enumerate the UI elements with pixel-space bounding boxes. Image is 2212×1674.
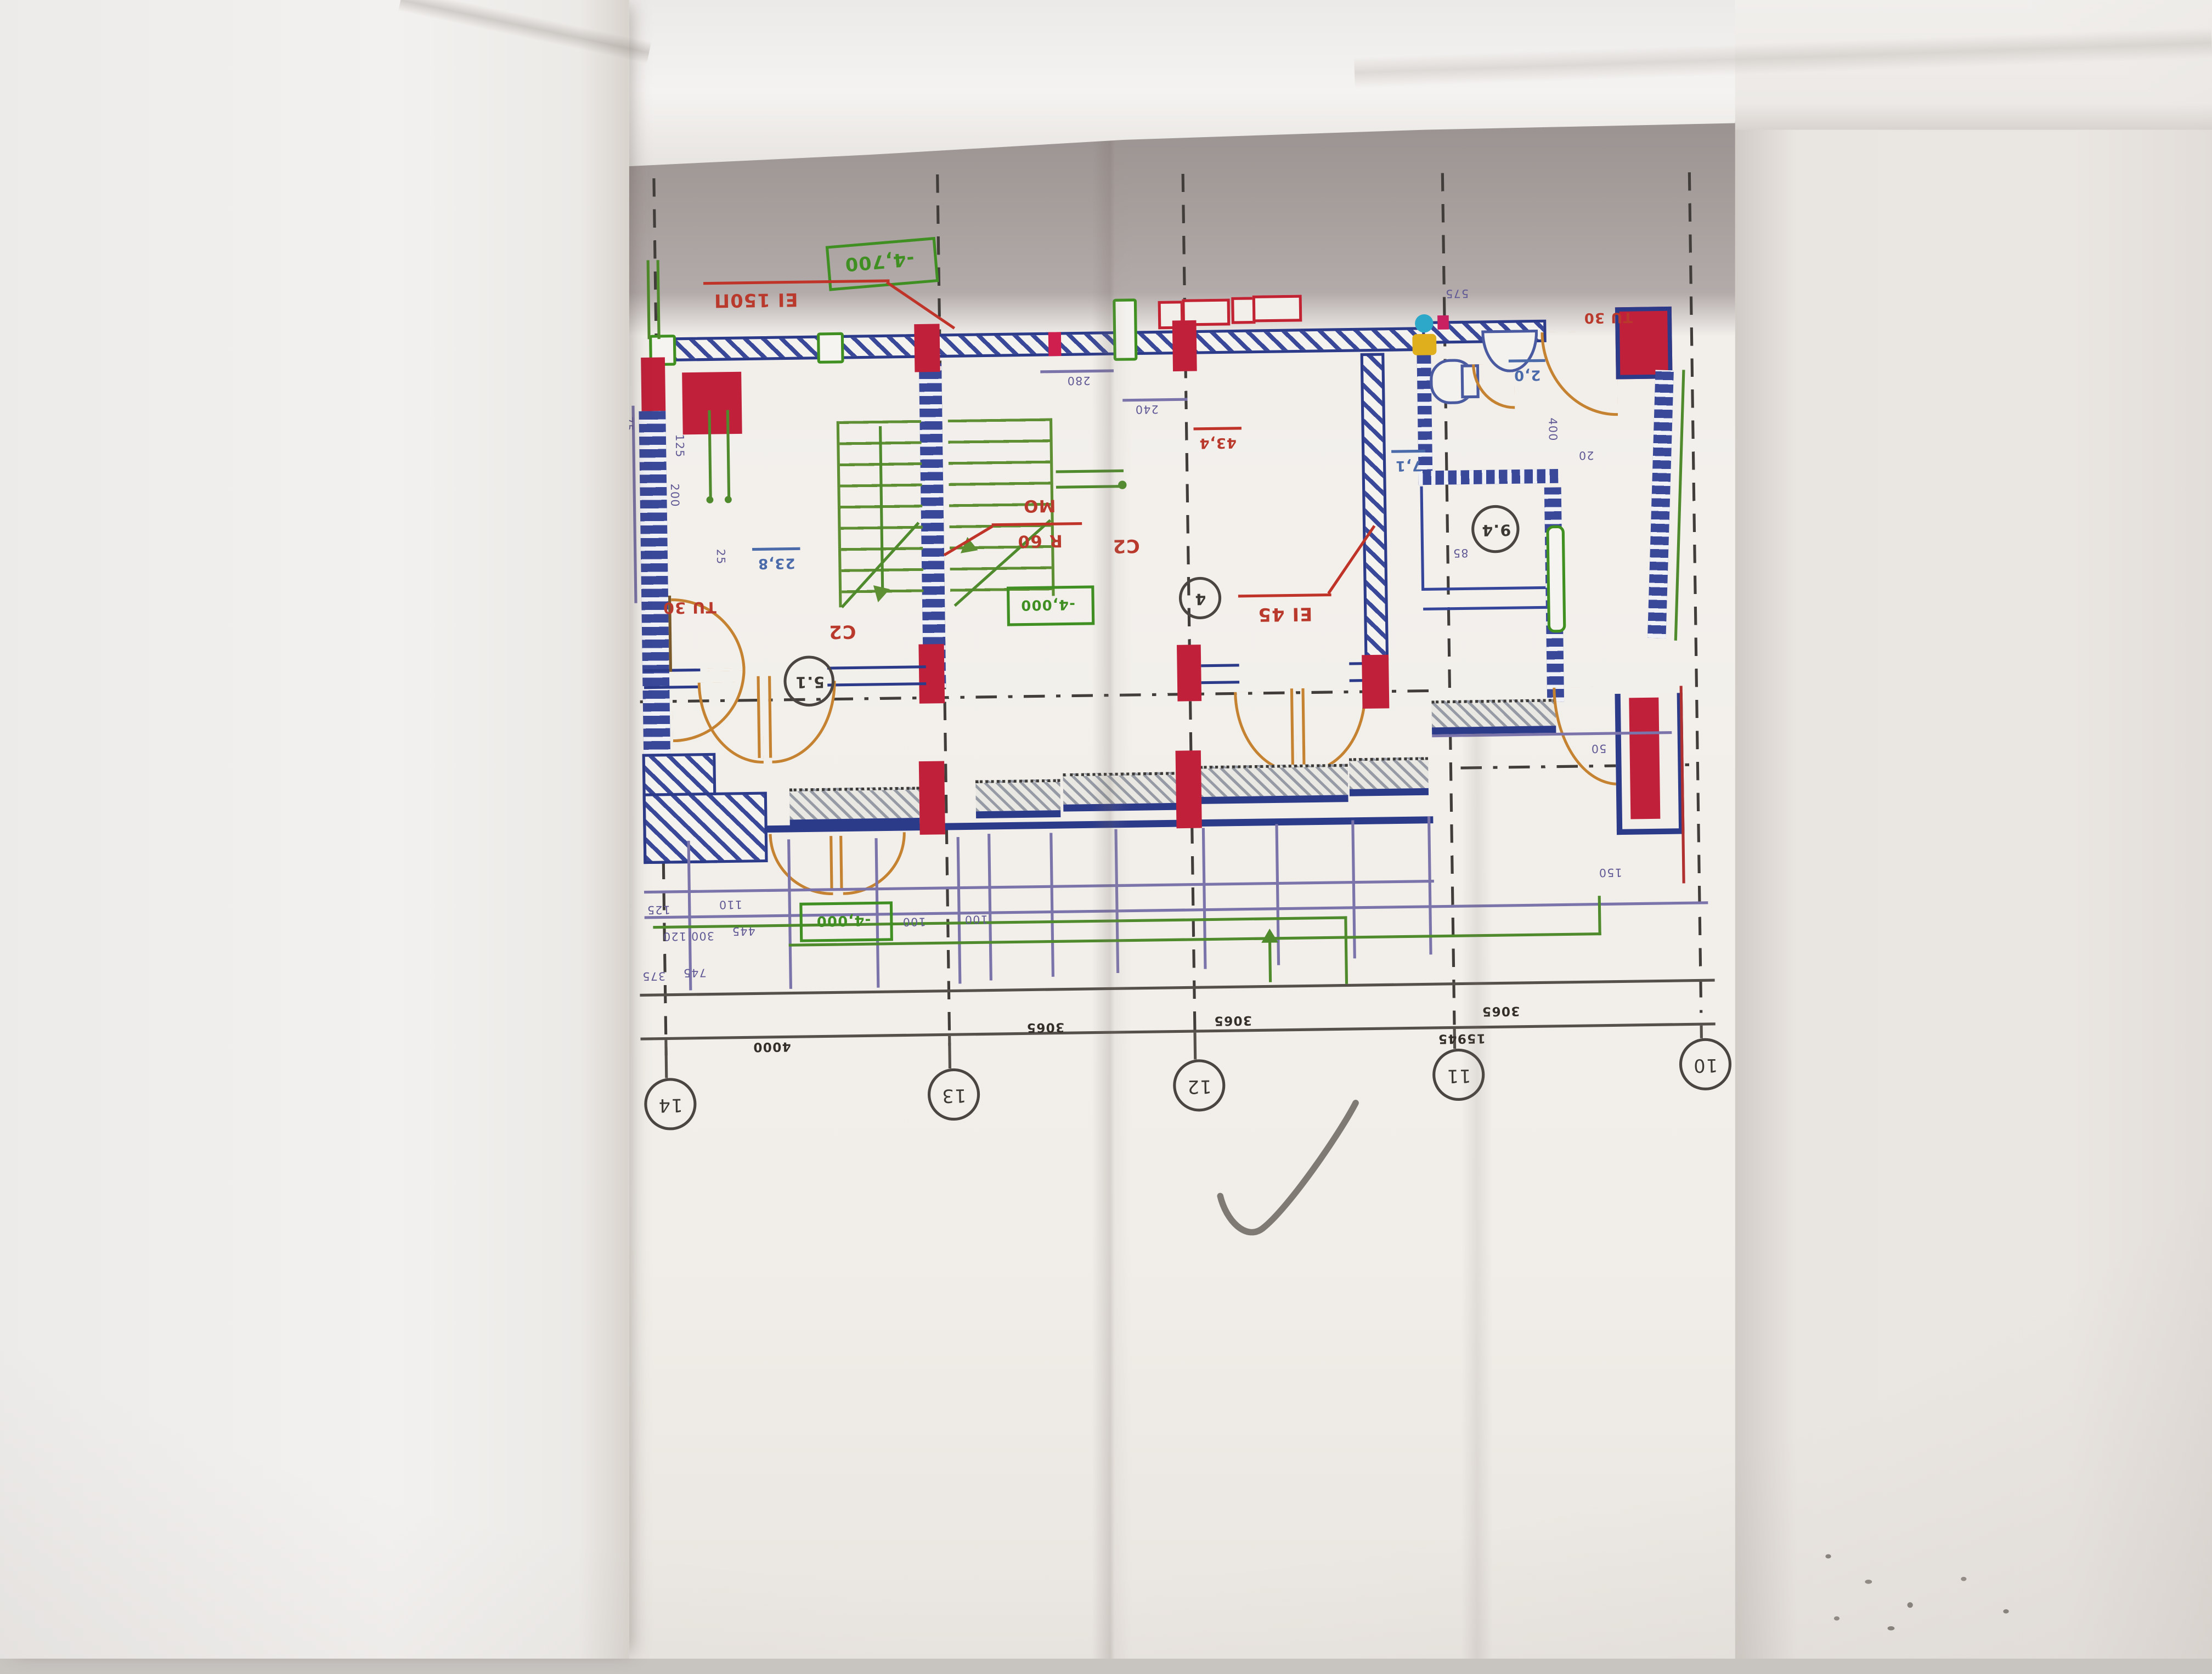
- column: [1629, 698, 1660, 819]
- grid-bubble-13: 13: [927, 1068, 980, 1121]
- fire-rating-label: EI 150П: [703, 285, 808, 314]
- marker-dot-yellow: [1412, 334, 1436, 355]
- area-overline: [1391, 450, 1425, 453]
- dim-bl: 745: [678, 965, 712, 981]
- fire-rating-partition: EI 45: [1241, 599, 1329, 629]
- window-sill: [1200, 764, 1348, 804]
- dim-r: 150: [1595, 864, 1626, 880]
- window-sill: [1349, 757, 1429, 796]
- wall-thin: [1423, 586, 1553, 591]
- grid-bubble-10: 10: [1679, 1038, 1731, 1090]
- dim-top: 280: [1063, 372, 1094, 388]
- stair-landing-line: [1056, 485, 1124, 489]
- photo-of-floor-plan: 14 13 12 11 10 4000 3065 3065 3065 15945…: [0, 0, 2212, 1659]
- dim-bl: 300 120: [659, 928, 718, 945]
- door-arc-top-right: [1541, 331, 1618, 417]
- grid-axis-10: [1688, 172, 1703, 1013]
- axis-stub: [948, 1036, 951, 1068]
- dim-line-grid: [640, 1022, 1715, 1040]
- wall-room-left: [827, 665, 926, 687]
- level-label-bottom: -4,000: [802, 904, 884, 934]
- bay-line: [1275, 824, 1280, 965]
- stair-landing-line: [1056, 470, 1124, 473]
- column: [641, 357, 665, 411]
- area-overline: [752, 547, 800, 551]
- column-stair-corner: [682, 372, 742, 435]
- bay-line: [1114, 829, 1119, 973]
- column: [1177, 644, 1201, 701]
- dim-dot: [706, 496, 713, 504]
- door-label-left: TU 30: [657, 596, 722, 618]
- dim-dot: [725, 496, 732, 503]
- arrow-head-green: [1261, 929, 1278, 943]
- leader-line-green: [1344, 916, 1348, 983]
- bay-line: [1049, 833, 1054, 976]
- bay-line: [1202, 828, 1207, 969]
- grid-span-dim: 3065: [1023, 1017, 1068, 1035]
- dim-line: [631, 406, 637, 603]
- fire-partition-line: [1238, 593, 1331, 598]
- bay-line: [957, 837, 962, 983]
- column: [914, 324, 940, 372]
- dim-top: 240: [1131, 401, 1163, 417]
- terrace-sill: [1431, 699, 1556, 734]
- facade-line-green: [647, 260, 651, 339]
- column: [1048, 332, 1062, 356]
- level-label-middle: -4,000: [1009, 589, 1086, 618]
- door-arc: [1234, 691, 1297, 774]
- radiator-symbol: [1252, 295, 1302, 322]
- dim-r: 85: [1449, 545, 1472, 561]
- door-arc-terrace: [1553, 687, 1619, 787]
- area-label-aux: 7,1: [1391, 454, 1425, 474]
- dim-top: 575: [1443, 285, 1471, 301]
- door-arc: [769, 833, 833, 896]
- dim-left: 25: [706, 547, 734, 567]
- dim-bl: 125: [643, 902, 674, 918]
- marker-dot-magenta: [1437, 315, 1449, 330]
- room-number-right: 9.4: [1481, 521, 1510, 537]
- room-type-left: C2: [821, 615, 864, 647]
- grid-span-dim: 3065: [1478, 1001, 1523, 1019]
- grid-bubble-11: 11: [1432, 1048, 1485, 1101]
- column: [1176, 750, 1202, 828]
- bay-line: [988, 834, 992, 980]
- leader-line-red: [886, 281, 955, 329]
- leader-line-green: [1598, 896, 1601, 935]
- dim-dot: [1118, 480, 1127, 489]
- dim-r: 400: [1536, 418, 1567, 441]
- paper-sheet-left: [0, 0, 629, 1659]
- dim-bl: 375: [637, 968, 671, 984]
- wall-thin: [1420, 487, 1424, 591]
- arrow-shaft-green: [1268, 940, 1272, 982]
- line-thin: [644, 880, 1434, 893]
- line-red-thin: [1680, 686, 1685, 883]
- wall-left-exterior: [639, 411, 670, 754]
- column: [1172, 320, 1197, 371]
- area-label-bath: 2,0: [1509, 363, 1545, 383]
- dim-line-grid: [640, 979, 1714, 997]
- door-label-top-right: TU 30: [1578, 307, 1638, 326]
- area-label-left: 23,8: [752, 551, 800, 573]
- facade-line-green: [657, 260, 661, 339]
- dim-left: 125: [663, 436, 695, 456]
- area-label-right: 43,4: [1194, 431, 1242, 453]
- dim-left: 200: [658, 485, 690, 506]
- dim-r: 50: [1587, 740, 1610, 756]
- wall-right-exterior: [1647, 370, 1674, 638]
- wall-fire-partition: [1361, 353, 1389, 660]
- wall-corner-bottom-left: [643, 791, 768, 864]
- dim-bm: 100: [899, 914, 930, 930]
- window-symbol: [817, 332, 844, 364]
- room-circle-mid: 4: [1178, 576, 1221, 619]
- column: [919, 761, 945, 835]
- vent-shaft-symbol: [1113, 298, 1137, 361]
- wall-stair-core: [919, 363, 946, 688]
- dim-bl: 445: [726, 923, 760, 939]
- area-overline: [1509, 359, 1545, 363]
- wall-top-exterior: [651, 327, 1428, 361]
- wall-bathroom-bottom: [1418, 469, 1558, 485]
- grid-bubble-14: 14: [644, 1078, 697, 1130]
- axis-stub: [664, 1040, 668, 1078]
- room-type-right: C2: [1105, 530, 1148, 562]
- dim-bl: 110: [715, 896, 746, 912]
- facade-line-green: [1674, 370, 1685, 641]
- window-symbol-vertical: [1546, 525, 1566, 633]
- window-sill: [789, 787, 920, 827]
- column: [1362, 655, 1389, 709]
- room-circle-right: 9.4: [1471, 505, 1520, 553]
- bay-line: [1427, 816, 1432, 954]
- room-number-left: 5.1: [794, 673, 824, 689]
- area-overline: [1193, 427, 1241, 430]
- grid-span-dim: 3065: [1210, 1010, 1256, 1028]
- dim-bm: 100: [961, 911, 992, 927]
- wall-corridor: [1201, 664, 1239, 684]
- grid-total-dim: 15945: [1434, 1028, 1490, 1046]
- wall-thin: [1423, 606, 1553, 610]
- room-number-mid: 4: [1194, 590, 1206, 606]
- grid-span-dim: 4000: [748, 1037, 796, 1054]
- dim-r: 20: [1575, 447, 1598, 463]
- stair-note-top: MO: [1000, 493, 1079, 519]
- axis-stub: [1193, 1033, 1197, 1060]
- wall-bottom-edge: [663, 816, 1433, 834]
- pencil-checkmark: [1206, 1093, 1376, 1248]
- axis-stub: [1700, 1026, 1702, 1038]
- stair-note-bottom: R 60: [1000, 528, 1080, 554]
- window-sill: [975, 779, 1060, 819]
